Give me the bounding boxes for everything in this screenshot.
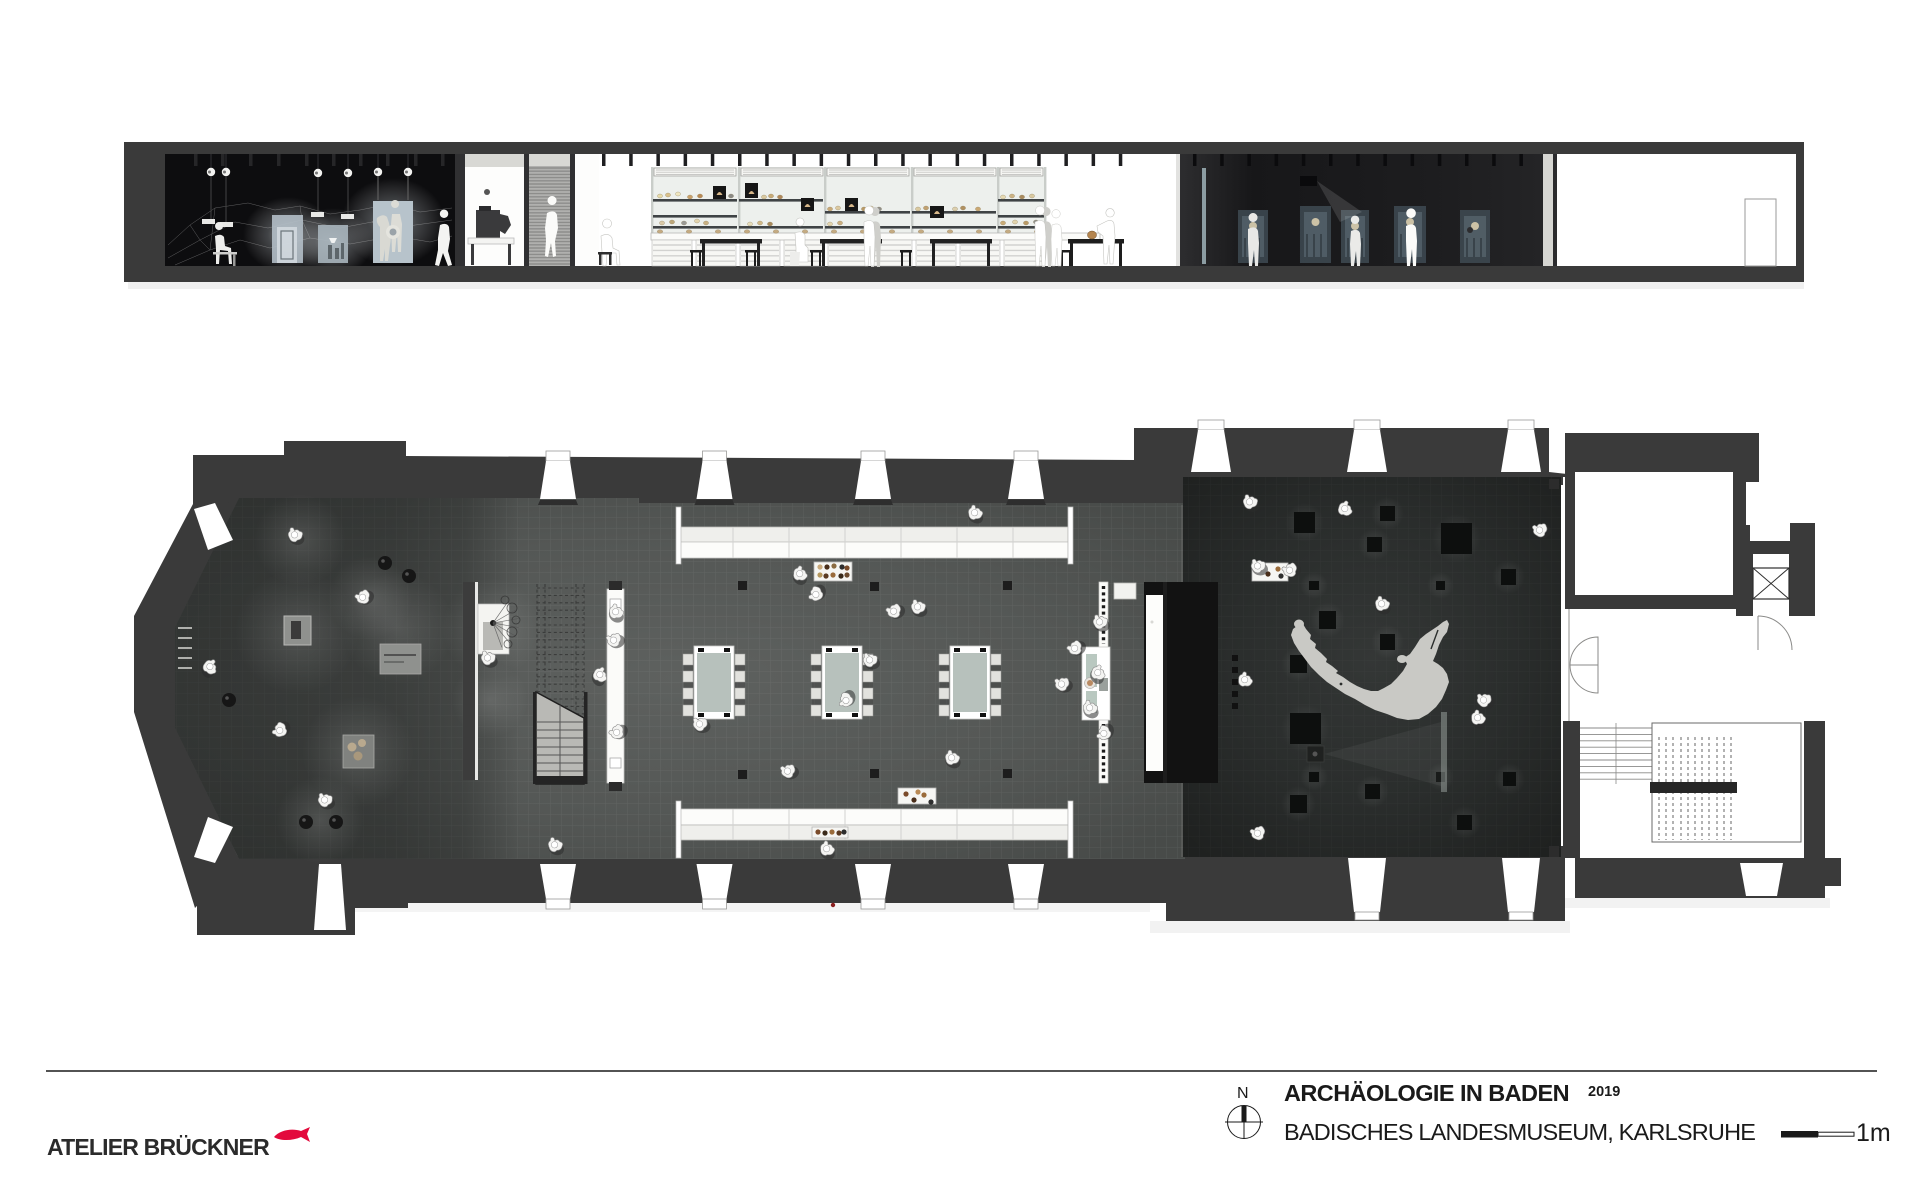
svg-text:1m: 1m — [1856, 1119, 1891, 1147]
svg-text:ARCHÄOLOGIE IN BADEN: ARCHÄOLOGIE IN BADEN — [1284, 1080, 1569, 1106]
svg-text:2019: 2019 — [1588, 1084, 1620, 1100]
svg-text:ATELIER BRÜCKNER: ATELIER BRÜCKNER — [47, 1134, 270, 1160]
svg-text:BADISCHES LANDESMUSEUM, KARLSR: BADISCHES LANDESMUSEUM, KARLSRUHE — [1284, 1119, 1755, 1145]
svg-text:N: N — [1237, 1085, 1249, 1102]
